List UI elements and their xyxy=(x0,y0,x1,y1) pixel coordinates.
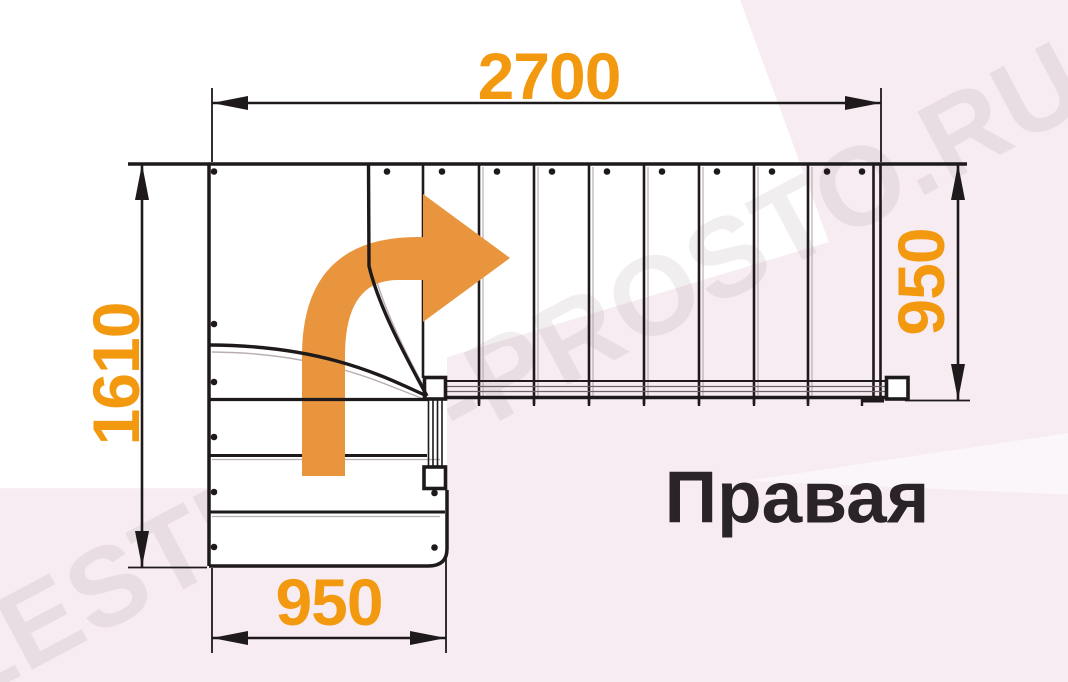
band-end-post xyxy=(887,378,909,400)
dimension-label-right: 950 xyxy=(888,228,954,335)
upper-flight-treads xyxy=(423,164,808,404)
dimension-label-top: 2700 xyxy=(478,43,621,109)
lower-post xyxy=(424,467,446,489)
band-end-dash xyxy=(861,398,884,403)
dimension-label-left: 1610 xyxy=(83,303,149,446)
corner-post xyxy=(425,378,446,400)
stringer-band xyxy=(447,381,886,406)
dimension-label-bottom: 950 xyxy=(275,569,382,635)
staircase-drawing-canvas: LESTNICY-PROSTO.RU xyxy=(0,0,1068,682)
right-edge-double-line xyxy=(874,164,881,398)
plan-title: Правая xyxy=(665,462,930,535)
